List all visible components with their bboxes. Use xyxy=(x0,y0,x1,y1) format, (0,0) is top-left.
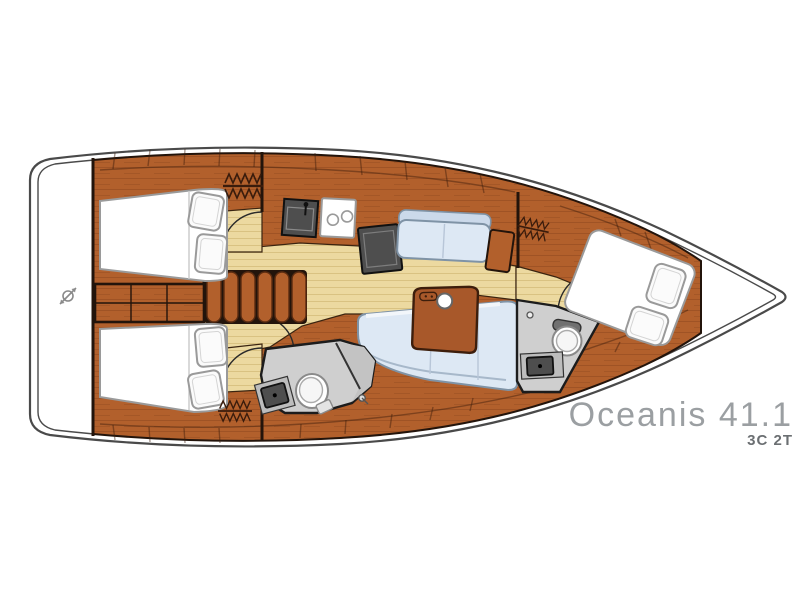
side-cabinet xyxy=(485,230,514,273)
head-sink xyxy=(520,352,563,379)
stove-burner-icon xyxy=(341,211,353,223)
door-knob xyxy=(527,312,533,318)
pillow xyxy=(194,234,227,274)
salon-table xyxy=(412,285,478,353)
starboard-settee xyxy=(397,210,491,263)
aft-cabin-port xyxy=(100,324,228,412)
pillow xyxy=(187,369,225,409)
stove-burner-icon xyxy=(327,214,339,226)
pillow xyxy=(187,191,225,231)
aft-cabin-starboard xyxy=(100,189,228,281)
boat-name: Oceanis 41.1 xyxy=(569,396,793,434)
galley-stove xyxy=(320,198,356,238)
pillow xyxy=(194,327,227,367)
galley-sink xyxy=(282,199,318,237)
boat-variant-code: 3C 2T xyxy=(747,432,793,449)
cup-holder xyxy=(437,293,453,309)
floorplan-page: Oceanis 41.1 3C 2T xyxy=(0,0,800,600)
yacht-floorplan: Oceanis 41.1 3C 2T xyxy=(0,0,800,600)
engine-compartment xyxy=(95,284,204,322)
galley-fridge xyxy=(358,224,403,274)
